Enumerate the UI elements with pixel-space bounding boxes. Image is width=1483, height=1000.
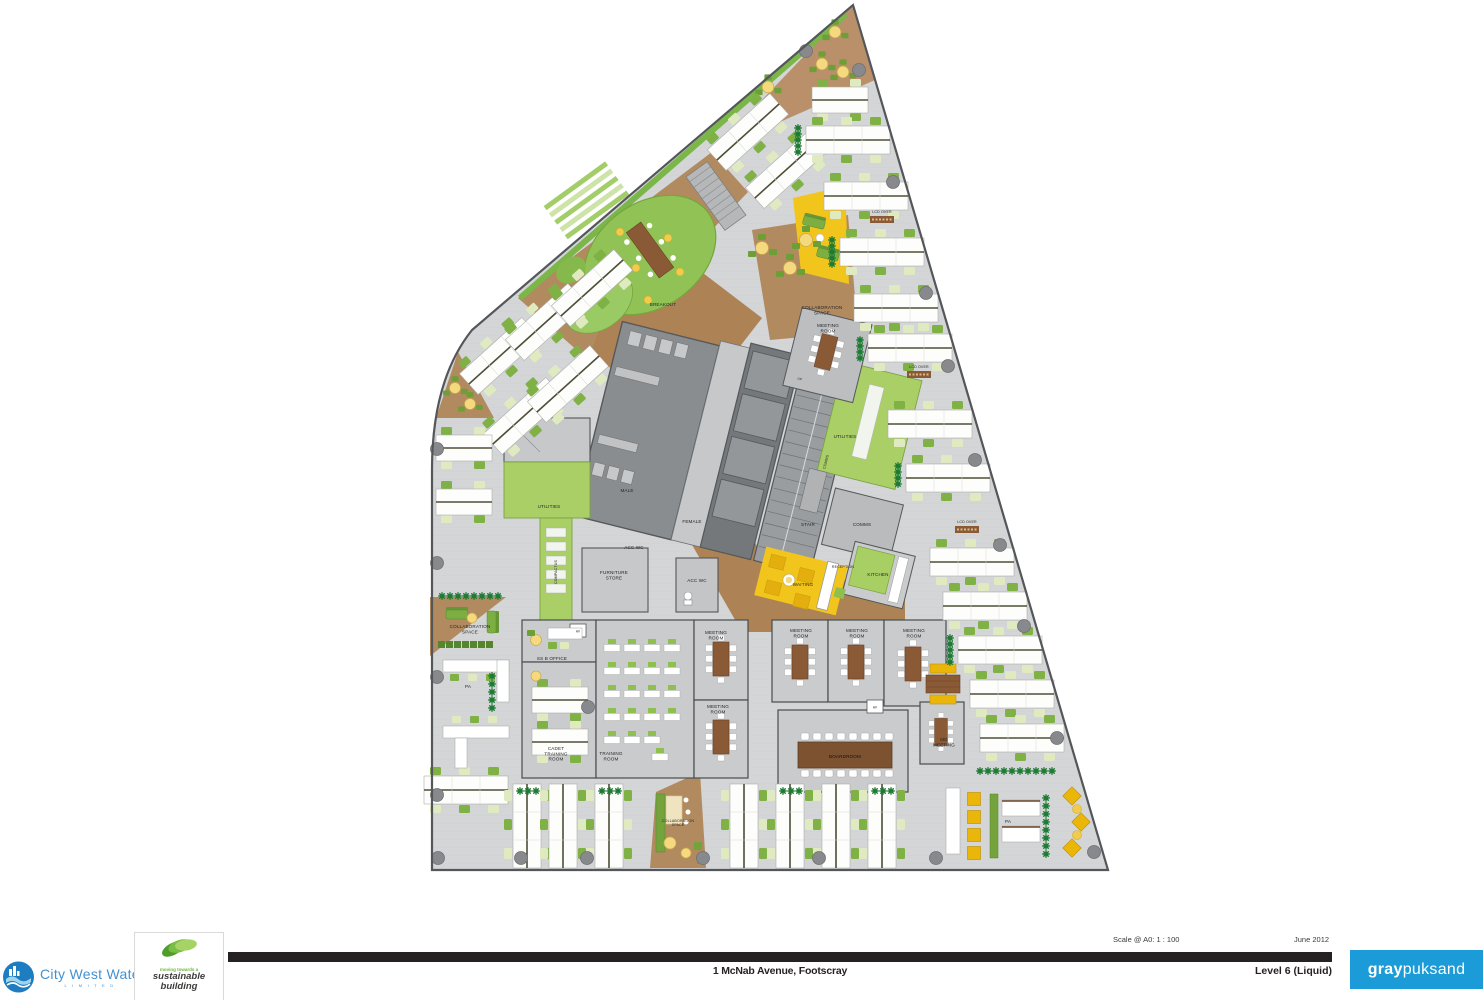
label-lcd-1: LCD OVER bbox=[872, 210, 892, 214]
label-comms-room: COMMS bbox=[853, 522, 871, 527]
label-lcd-2: LCD OVER bbox=[909, 365, 929, 369]
sustain-line2: building bbox=[135, 982, 223, 992]
sustainability-logo: moving towards a sustainable building bbox=[134, 932, 224, 1000]
city-west-water-icon bbox=[2, 959, 35, 995]
label-utilities-w: UTILITIES bbox=[538, 504, 561, 509]
title-block: City West Water L I M I T E D moving tow… bbox=[0, 925, 1483, 1000]
project-title: 1 McNab Avenue, Footscray bbox=[228, 965, 1332, 977]
label-stair: STAIR bbox=[801, 522, 815, 527]
architect-name-light: puksand bbox=[1403, 961, 1466, 979]
leaf-icon bbox=[157, 933, 201, 961]
label-boardroom: BOARDROOM bbox=[829, 754, 861, 759]
architect-logo: graypuksand bbox=[1350, 950, 1483, 989]
label-ss-b-office: SS B OFFICE bbox=[537, 656, 567, 661]
label-male: MALE bbox=[620, 488, 633, 493]
label-waiting: WAITING bbox=[793, 582, 814, 587]
title-bar bbox=[228, 952, 1332, 962]
label-pa-w: PA bbox=[465, 684, 472, 689]
client-logo: City West Water L I M I T E D bbox=[2, 957, 145, 997]
label-acc-wc-entry: ACC WC bbox=[687, 578, 707, 583]
label-pa-s: PA bbox=[1005, 819, 1012, 824]
scale-note: Scale @ A0: 1 : 100 bbox=[1113, 935, 1179, 944]
label-av-1: AV bbox=[576, 630, 581, 634]
floor-plan: BREAKOUT COLLABORATIONSPACE MEETINGROOM … bbox=[0, 0, 1483, 1000]
drawing-sheet: BREAKOUT COLLABORATIONSPACE MEETINGROOM … bbox=[0, 0, 1483, 1000]
label-utilities-e: UTILITIES bbox=[834, 434, 857, 439]
label-lcd-3: LCD OVER bbox=[957, 520, 977, 524]
architect-name-bold: gray bbox=[1368, 961, 1403, 979]
label-reception: RECEPTION bbox=[832, 565, 855, 569]
client-sub: L I M I T E D bbox=[35, 983, 145, 988]
label-kitchen: KITCHEN bbox=[867, 572, 888, 577]
client-name: City West Water bbox=[40, 966, 145, 982]
date-note: June 2012 bbox=[1294, 935, 1329, 944]
label-acc-wc-core: ACC WC bbox=[624, 545, 644, 550]
label-compactus: COMPACTUS bbox=[554, 560, 558, 584]
label-female: FEMALE bbox=[682, 519, 701, 524]
label-breakout: BREAKOUT bbox=[650, 302, 677, 307]
sheet-title: Level 6 (Liquid) bbox=[1255, 965, 1332, 977]
label-av-2: AV bbox=[873, 706, 878, 710]
